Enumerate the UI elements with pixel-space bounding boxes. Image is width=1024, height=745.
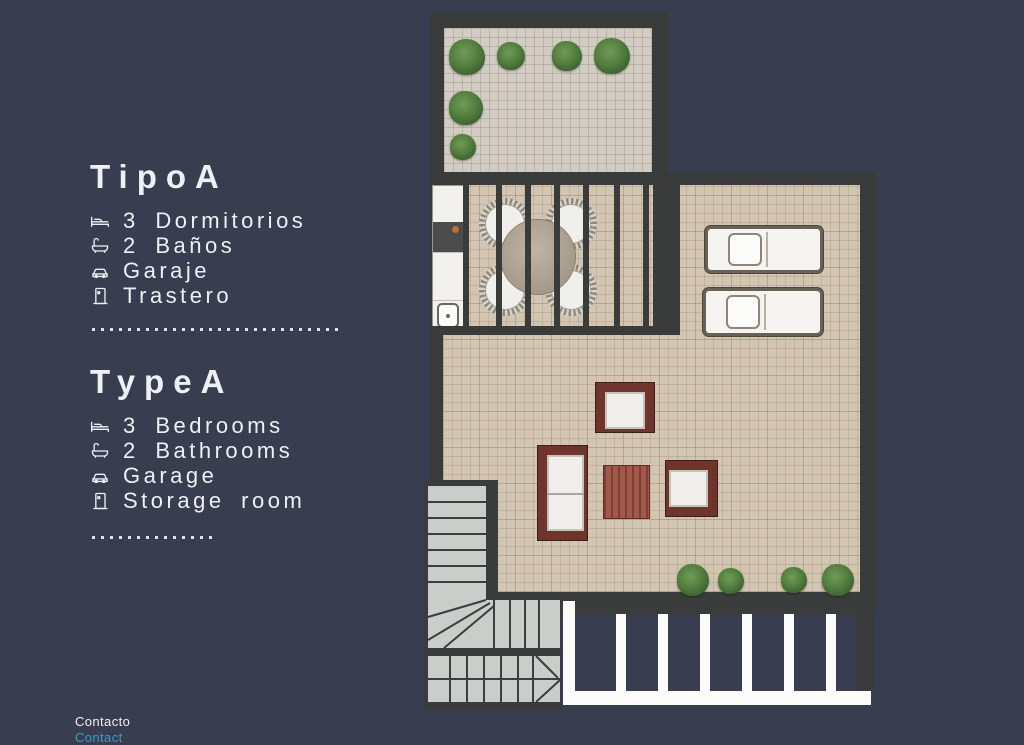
railing-post bbox=[616, 614, 626, 694]
divider-dotted-top bbox=[92, 328, 340, 331]
sun-lounger bbox=[705, 226, 823, 273]
railing-bottom-rail bbox=[563, 691, 871, 705]
pergola-slat bbox=[614, 183, 620, 333]
plant bbox=[497, 42, 525, 70]
pergola-slat bbox=[496, 183, 502, 333]
contact-block: Contacto Contact bbox=[75, 714, 130, 745]
plant bbox=[781, 567, 807, 593]
floor-plan-page: TipoA 3 Dormitorios2 BañosGarajeTrastero… bbox=[0, 0, 1024, 745]
legend-item: Garaje bbox=[90, 258, 306, 283]
railing-wall bbox=[856, 600, 874, 692]
contact-link[interactable]: Contact bbox=[75, 730, 123, 745]
legend-label: Garage bbox=[123, 463, 217, 489]
railing-post bbox=[563, 601, 575, 705]
legend-label: 3 Dormitorios bbox=[123, 208, 306, 234]
pergola-slat bbox=[525, 183, 531, 333]
legend-item: 3 Dormitorios bbox=[90, 208, 306, 233]
plant bbox=[449, 91, 483, 125]
legend-label: Trastero bbox=[123, 283, 232, 309]
pergola-slat bbox=[583, 183, 589, 333]
legend-es: TipoA 3 Dormitorios2 BañosGarajeTrastero bbox=[90, 158, 306, 308]
sink bbox=[437, 303, 459, 328]
bath-icon bbox=[90, 441, 110, 461]
pergola-slat bbox=[643, 183, 649, 333]
legend-item: Storage room bbox=[90, 488, 305, 513]
plant bbox=[449, 39, 485, 75]
legend-item: Trastero bbox=[90, 283, 306, 308]
pergola-slat bbox=[463, 183, 469, 333]
legend-item: 2 Bathrooms bbox=[90, 438, 305, 463]
plant bbox=[718, 568, 744, 594]
railing-post bbox=[826, 614, 836, 694]
legend-label: 2 Baños bbox=[123, 233, 235, 259]
contact-label: Contacto bbox=[75, 714, 130, 729]
dining-table bbox=[501, 220, 575, 294]
door-icon bbox=[90, 286, 110, 306]
legend-label: 3 Bedrooms bbox=[123, 413, 284, 439]
legend-en-title: TypeA bbox=[90, 363, 305, 401]
legend-label: 2 Bathrooms bbox=[123, 438, 293, 464]
railing-post bbox=[700, 614, 710, 694]
armchair bbox=[666, 461, 717, 516]
staircase bbox=[424, 480, 566, 710]
railing-post bbox=[658, 614, 668, 694]
legend-item: 2 Baños bbox=[90, 233, 306, 258]
interior-wall bbox=[653, 172, 680, 335]
coffee-table bbox=[604, 466, 649, 518]
legend-item: 3 Bedrooms bbox=[90, 413, 305, 438]
bath-icon bbox=[90, 236, 110, 256]
legend-label: Storage room bbox=[123, 488, 305, 514]
legend-label: Garaje bbox=[123, 258, 210, 284]
legend-en: TypeA 3 Bedrooms2 BathroomsGarageStorage… bbox=[90, 363, 305, 513]
car-icon bbox=[90, 261, 110, 281]
divider-dotted-bottom bbox=[92, 536, 217, 539]
legend-en-rows: 3 Bedrooms2 BathroomsGarageStorage room bbox=[90, 413, 305, 513]
sun-lounger bbox=[703, 288, 823, 336]
legend-item: Garage bbox=[90, 463, 305, 488]
legend-es-rows: 3 Dormitorios2 BañosGarajeTrastero bbox=[90, 208, 306, 308]
stove bbox=[433, 222, 464, 252]
bed-icon bbox=[90, 211, 110, 231]
armchair bbox=[596, 383, 654, 432]
railing-post bbox=[784, 614, 794, 694]
plant bbox=[677, 564, 709, 596]
plant bbox=[594, 38, 630, 74]
car-icon bbox=[90, 466, 110, 486]
pergola-beam bbox=[430, 326, 680, 335]
plant bbox=[822, 564, 854, 596]
legend-es-title: TipoA bbox=[90, 158, 306, 196]
stove-knob bbox=[452, 226, 459, 233]
bed-icon bbox=[90, 416, 110, 436]
plant bbox=[552, 41, 582, 71]
door-icon bbox=[90, 491, 110, 511]
plant bbox=[450, 134, 476, 160]
pergola-slat bbox=[554, 183, 560, 333]
railing-post bbox=[742, 614, 752, 694]
